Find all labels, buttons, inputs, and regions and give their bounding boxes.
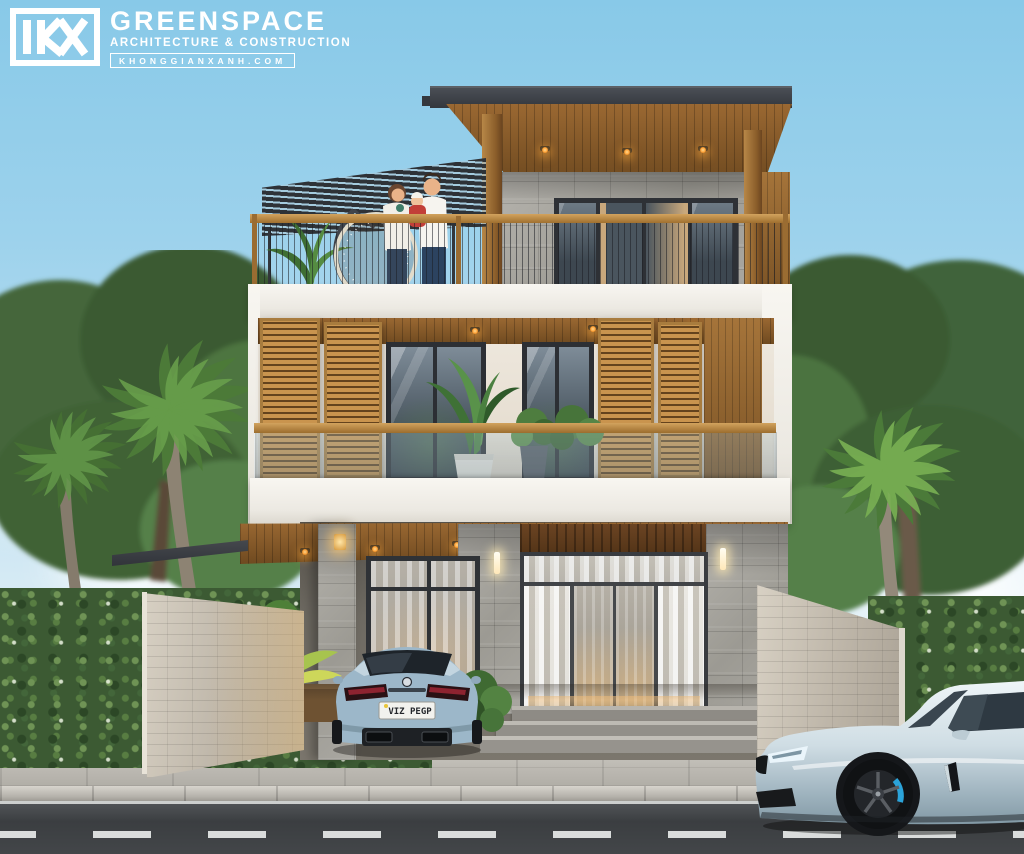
wall-warm-light: [207, 590, 304, 778]
logo-website: KHONGGIANXANH.COM: [110, 53, 295, 68]
driveway-car: VIZ PEGP: [332, 640, 482, 760]
balcony-downlight-icon: [588, 325, 598, 330]
logo-text-block: GREENSPACE ARCHITECTURE & CONSTRUCTION K…: [110, 8, 351, 69]
boundary-wall-left-corner-trim: [142, 592, 147, 774]
roof-downlight-icon: [698, 146, 708, 151]
carport-downlight-icon: [370, 545, 380, 550]
street-car: [748, 670, 1024, 854]
logo-tagline: ARCHITECTURE & CONSTRUCTION: [110, 37, 351, 49]
entrance-transom-glass: [524, 556, 704, 586]
upper-floor-slab: [248, 284, 792, 319]
wall-sconce-icon: [494, 552, 500, 574]
terrace-railing-post: [456, 216, 461, 288]
carport-downlight-icon: [300, 548, 310, 553]
roof-downlight-icon: [622, 148, 632, 153]
balcony-downlight-icon: [470, 327, 480, 332]
column-lamp-icon: [334, 534, 346, 550]
architectural-render-scene: VIZ PEGP: [0, 0, 1024, 854]
house-shadow: [250, 684, 790, 700]
balcony-handrail-wood: [254, 423, 776, 433]
roof-downlight-icon: [540, 146, 550, 151]
logo-name: GREENSPACE: [110, 8, 351, 35]
entrance-step-3: [480, 736, 788, 753]
boundary-wall-left: [142, 590, 304, 778]
terrace-railing-post: [252, 214, 257, 288]
wall-sconce-icon: [720, 548, 726, 570]
entrance-wood-header: [520, 524, 708, 554]
terrace-railing-post: [783, 214, 788, 288]
terrace-railing-toprail: [250, 214, 790, 223]
lower-floor-slab: [250, 478, 790, 524]
brand-watermark: GREENSPACE ARCHITECTURE & CONSTRUCTION K…: [10, 8, 351, 69]
balcony-glass-railing: [254, 432, 777, 480]
car-grille: [756, 755, 768, 774]
logo-mark-kx-icon: [10, 8, 100, 66]
entrance-step-1: [512, 706, 762, 722]
entrance-step-2: [496, 721, 776, 737]
license-plate-text: VIZ PEGP: [388, 707, 432, 717]
terrace-railing-wires: [252, 222, 788, 286]
window-transom-bar: [371, 587, 475, 591]
